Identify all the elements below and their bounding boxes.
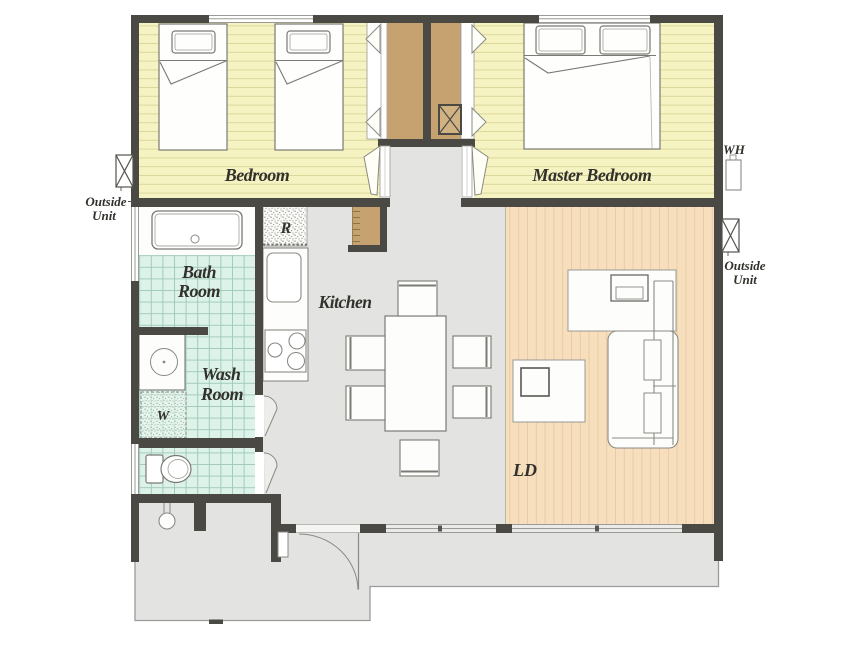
svg-text:Outside: Outside [724,258,765,273]
svg-text:Outside: Outside [85,194,126,209]
svg-text:WH: WH [723,142,746,157]
svg-text:Kitchen: Kitchen [318,292,372,312]
svg-text:R: R [280,220,292,237]
svg-text:Master Bedroom: Master Bedroom [532,165,652,185]
svg-text:Unit: Unit [92,208,116,223]
svg-text:Unit: Unit [733,272,757,287]
svg-text:LD: LD [512,460,537,480]
svg-text:Bath: Bath [181,262,217,282]
svg-text:Wash: Wash [202,364,241,384]
svg-text:Bedroom: Bedroom [224,165,290,185]
svg-text:W: W [157,409,171,424]
svg-text:Room: Room [200,384,244,404]
svg-text:Room: Room [177,281,221,301]
